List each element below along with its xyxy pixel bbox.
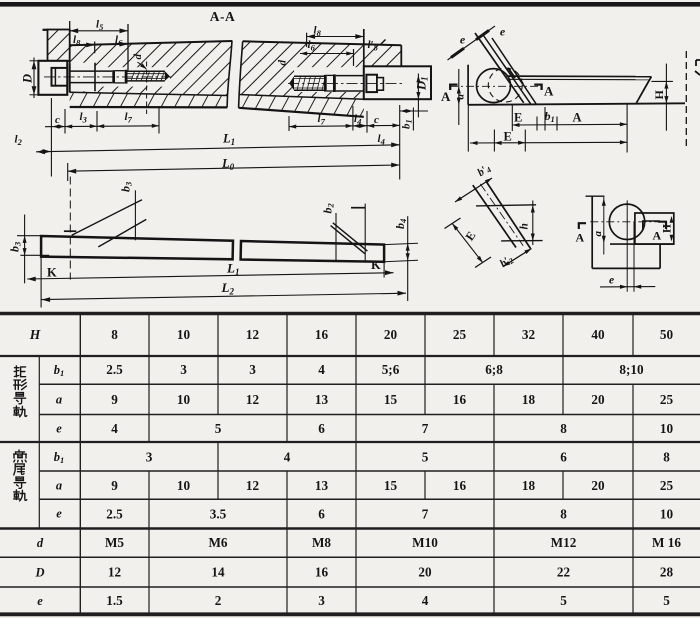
svg-text:l4: l4 xyxy=(378,133,385,147)
svg-text:l5: l5 xyxy=(96,19,104,33)
svg-text:10: 10 xyxy=(660,507,674,522)
svg-text:b1: b1 xyxy=(401,119,414,129)
svg-text:5: 5 xyxy=(663,593,670,608)
svg-text:6;8: 6;8 xyxy=(485,362,503,377)
svg-text:A: A xyxy=(653,229,662,243)
svg-text:M 16: M 16 xyxy=(652,535,681,550)
svg-text:9: 9 xyxy=(111,478,118,493)
svg-text:c: c xyxy=(55,114,60,126)
svg-text:H: H xyxy=(29,327,41,342)
svg-text:A: A xyxy=(441,89,451,104)
svg-text:3.5: 3.5 xyxy=(210,507,227,522)
svg-text:10: 10 xyxy=(177,392,191,407)
svg-text:9: 9 xyxy=(111,392,118,407)
svg-text:A-A: A-A xyxy=(210,9,236,24)
svg-text:3: 3 xyxy=(180,362,187,377)
svg-text:3: 3 xyxy=(249,362,256,377)
svg-text:4: 4 xyxy=(318,362,325,377)
svg-text:e: e xyxy=(56,507,62,521)
svg-text:16: 16 xyxy=(315,565,329,580)
svg-text:b3: b3 xyxy=(119,181,134,192)
svg-text:E: E xyxy=(514,111,522,125)
svg-text:d: d xyxy=(277,60,289,66)
svg-text:20: 20 xyxy=(591,478,605,493)
svg-text:50: 50 xyxy=(660,327,674,342)
svg-text:2.5: 2.5 xyxy=(106,362,123,377)
svg-text:e: e xyxy=(609,274,614,286)
svg-text:7: 7 xyxy=(422,421,429,436)
svg-text:18: 18 xyxy=(522,392,536,407)
svg-text:7: 7 xyxy=(422,507,429,522)
svg-text:13: 13 xyxy=(315,478,329,493)
svg-text:40: 40 xyxy=(591,327,605,342)
svg-text:12: 12 xyxy=(246,392,260,407)
svg-text:15: 15 xyxy=(384,392,398,407)
svg-text:a: a xyxy=(455,94,467,100)
svg-text:E: E xyxy=(462,229,478,243)
svg-text:3: 3 xyxy=(318,593,325,608)
svg-text:12: 12 xyxy=(246,478,260,493)
svg-text:E: E xyxy=(504,130,512,144)
svg-text:l6: l6 xyxy=(115,34,123,48)
svg-text:20: 20 xyxy=(384,327,398,342)
svg-text:10: 10 xyxy=(660,421,674,436)
svg-text:c: c xyxy=(374,114,379,126)
svg-text:b1: b1 xyxy=(54,450,65,465)
svg-text:h: h xyxy=(519,223,531,229)
svg-text:13: 13 xyxy=(315,392,329,407)
svg-text:4: 4 xyxy=(422,593,429,608)
svg-text:5;6: 5;6 xyxy=(382,362,400,377)
svg-text:b′2: b′2 xyxy=(498,253,516,271)
svg-text:1.5: 1.5 xyxy=(106,593,123,608)
svg-text:8: 8 xyxy=(111,327,118,342)
svg-text:A: A xyxy=(544,84,554,99)
svg-text:16: 16 xyxy=(453,478,467,493)
svg-text:l8: l8 xyxy=(314,24,322,38)
svg-text:e: e xyxy=(37,594,43,608)
svg-text:d: d xyxy=(37,536,44,550)
svg-text:e: e xyxy=(56,422,62,436)
svg-text:28: 28 xyxy=(660,565,674,580)
svg-text:l′8: l′8 xyxy=(368,39,379,53)
svg-text:18: 18 xyxy=(522,478,536,493)
svg-text:15: 15 xyxy=(384,478,398,493)
svg-text:2: 2 xyxy=(215,593,222,608)
svg-text:5: 5 xyxy=(215,421,222,436)
svg-text:e: e xyxy=(500,25,506,39)
svg-text:L0: L0 xyxy=(221,157,235,173)
svg-text:L2: L2 xyxy=(221,280,235,297)
svg-text:25: 25 xyxy=(660,392,674,407)
svg-text:K: K xyxy=(371,258,381,272)
svg-text:25: 25 xyxy=(660,478,674,493)
svg-text:A: A xyxy=(576,231,585,245)
svg-text:K: K xyxy=(47,266,57,280)
svg-text:3: 3 xyxy=(146,450,153,465)
svg-text:14: 14 xyxy=(211,565,225,580)
svg-text:25: 25 xyxy=(453,327,467,342)
svg-text:12: 12 xyxy=(108,565,122,580)
svg-text:8: 8 xyxy=(560,421,567,436)
svg-text:a: a xyxy=(56,393,62,407)
svg-text:L1: L1 xyxy=(222,132,235,148)
svg-text:8: 8 xyxy=(560,507,567,522)
svg-text:8: 8 xyxy=(663,450,670,465)
svg-text:10: 10 xyxy=(177,327,191,342)
svg-text:6: 6 xyxy=(560,450,567,465)
svg-text:M6: M6 xyxy=(208,535,227,550)
svg-text:32: 32 xyxy=(522,327,536,342)
svg-text:M12: M12 xyxy=(551,535,577,550)
svg-text:4: 4 xyxy=(111,421,118,436)
svg-text:16: 16 xyxy=(315,327,329,342)
svg-text:2.5: 2.5 xyxy=(106,507,123,522)
svg-text:b2: b2 xyxy=(320,203,335,214)
svg-text:M8: M8 xyxy=(312,535,331,550)
svg-text:l8: l8 xyxy=(73,34,81,48)
svg-text:D: D xyxy=(21,74,35,84)
svg-text:A: A xyxy=(573,111,582,125)
svg-text:M10: M10 xyxy=(412,535,438,550)
svg-text:20: 20 xyxy=(591,392,605,407)
svg-text:L1: L1 xyxy=(226,260,239,277)
svg-text:b3: b3 xyxy=(8,241,23,252)
svg-text:5: 5 xyxy=(560,593,567,608)
svg-text:D: D xyxy=(34,566,44,580)
svg-text:d: d xyxy=(132,54,144,60)
svg-text:6: 6 xyxy=(318,507,325,522)
svg-text:20: 20 xyxy=(418,565,432,580)
svg-text:a: a xyxy=(56,479,62,493)
svg-text:e: e xyxy=(460,33,466,47)
svg-text:4: 4 xyxy=(284,450,291,465)
svg-text:b′4: b′4 xyxy=(475,162,493,180)
svg-text:8;10: 8;10 xyxy=(619,362,644,377)
svg-text:b4: b4 xyxy=(393,219,408,229)
svg-text:5: 5 xyxy=(422,450,429,465)
svg-text:l3: l3 xyxy=(80,111,88,125)
svg-text:b1: b1 xyxy=(545,109,555,124)
svg-text:22: 22 xyxy=(557,565,571,580)
svg-text:H: H xyxy=(662,224,674,233)
svg-text:l2: l2 xyxy=(15,134,23,148)
svg-text:12: 12 xyxy=(246,327,260,342)
svg-text:b1: b1 xyxy=(54,363,65,378)
svg-text:l6: l6 xyxy=(308,39,316,53)
svg-text:10: 10 xyxy=(177,478,191,493)
svg-text:6: 6 xyxy=(318,421,325,436)
svg-text:H: H xyxy=(652,90,666,100)
svg-text:M5: M5 xyxy=(105,535,124,550)
svg-text:16: 16 xyxy=(453,392,467,407)
svg-text:l7: l7 xyxy=(125,111,133,125)
svg-text:a: a xyxy=(592,231,604,237)
